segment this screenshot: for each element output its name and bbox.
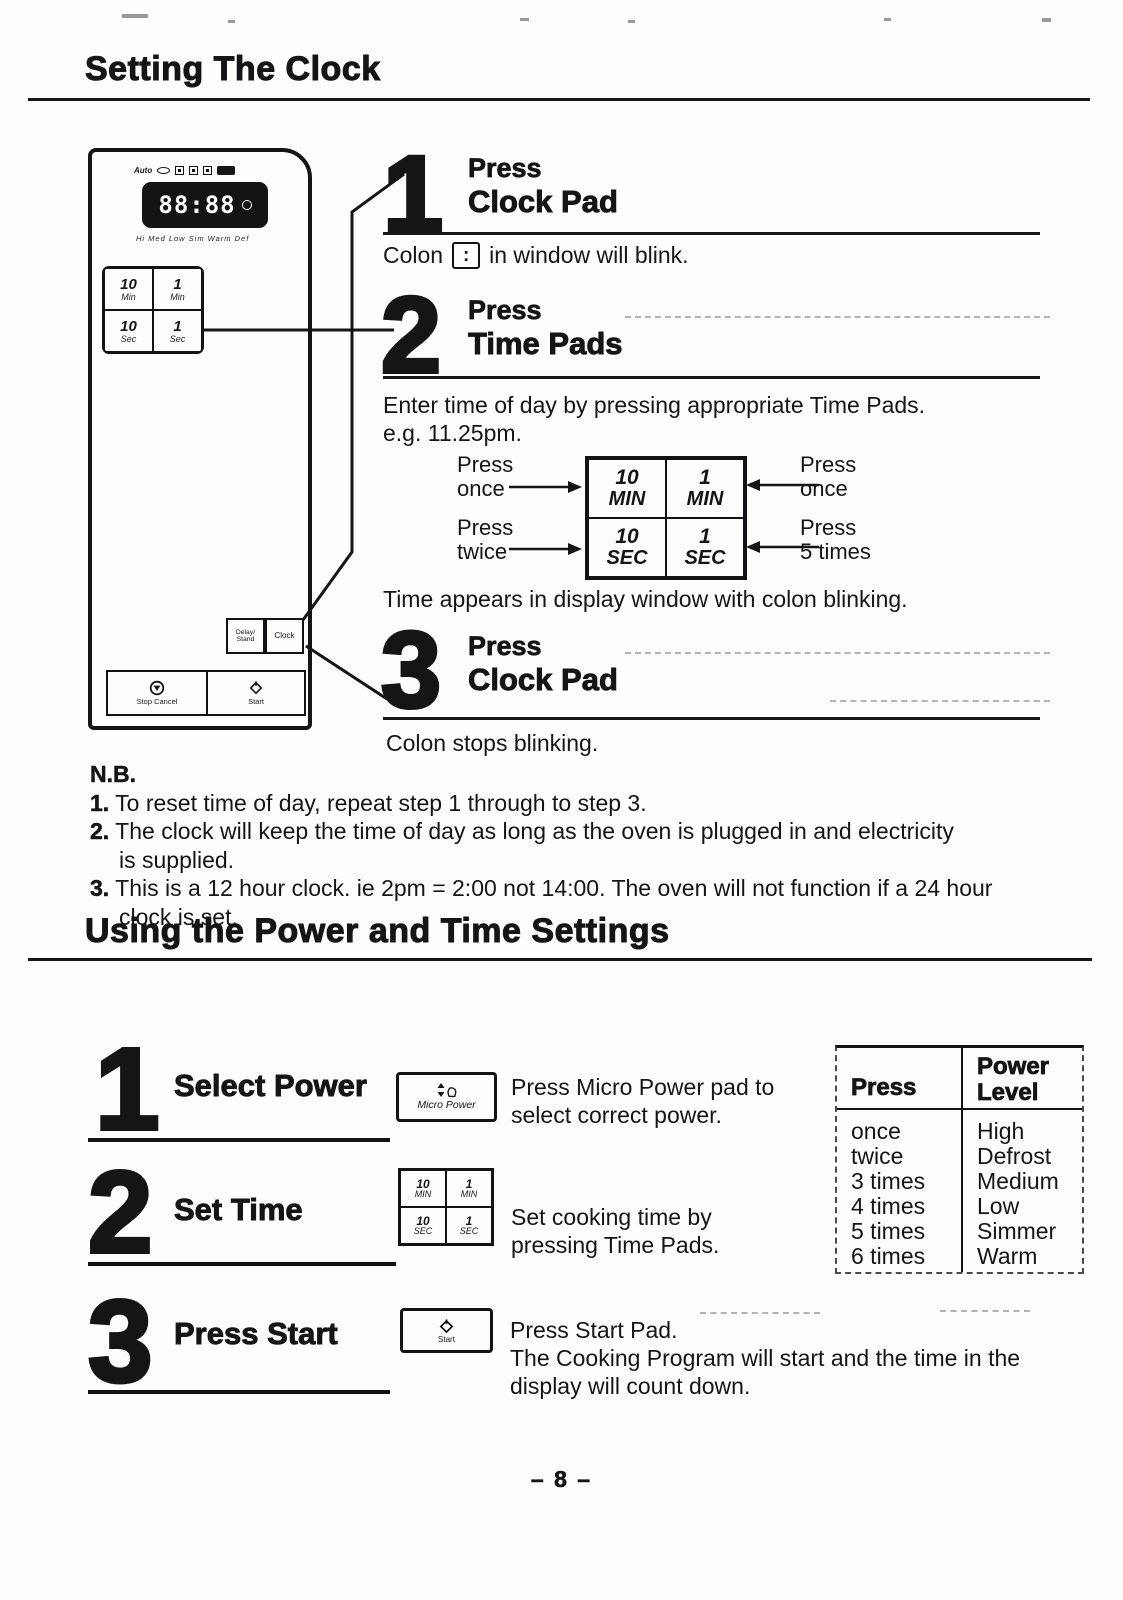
start-diamond-icon <box>248 680 264 696</box>
arrow-left-icon <box>745 478 819 492</box>
step-1-heading: Press Clock Pad <box>468 152 618 220</box>
start-diamond-icon <box>438 1318 455 1335</box>
colon-stops-note: Colon stops blinking. <box>386 729 598 757</box>
power-step-2-number: 2 <box>88 1163 153 1261</box>
step-2-heading: Press Time Pads <box>468 294 623 362</box>
seven-segment-digits: 88:88 <box>158 191 235 219</box>
step-3-rule <box>383 717 1040 720</box>
time-appears-note: Time appears in display window with colo… <box>383 585 908 613</box>
mini-time-pads: 10 MIN 1 MIN 10 SEC 1 SEC <box>398 1168 494 1246</box>
page-title: Setting The Clock <box>85 50 381 89</box>
clock-pad: Clock <box>265 618 304 654</box>
scan-artifact <box>628 20 635 23</box>
diagram-ten-min-pad: 10 MIN <box>588 459 666 518</box>
press-hand-icon <box>437 1083 457 1097</box>
power-step-1-underline <box>88 1138 390 1142</box>
select-power-desc: Press Micro Power pad to select correct … <box>511 1073 774 1129</box>
scan-artifact <box>520 18 529 21</box>
lock-indicator-icon <box>217 166 235 175</box>
micro-power-pad: Micro Power <box>396 1072 497 1122</box>
one-min-pad: 1 Min <box>153 268 202 310</box>
arrow-right-icon <box>509 542 583 556</box>
mini-one-sec-pad: 1 SEC <box>446 1207 492 1244</box>
table-row: twice Defrost <box>837 1143 1082 1168</box>
press-start-desc: Press Start Pad. The Cooking Program wil… <box>510 1316 1020 1400</box>
colon-box-icon: : <box>452 242 480 269</box>
weight-icon <box>203 166 212 175</box>
nb-item-1: 1. To reset time of day, repeat step 1 t… <box>90 789 1080 818</box>
nb-item-2: 2. The clock will keep the time of day a… <box>90 817 1080 846</box>
nb-item-3: 3. This is a 12 hour clock. ie 2pm = 2:0… <box>90 874 1080 903</box>
arrow-left-icon <box>745 540 819 554</box>
nb-notes: N.B. 1. To reset time of day, repeat ste… <box>90 760 1080 931</box>
delay-stand-pad: Delay/ Stand <box>226 618 265 654</box>
diagram-one-sec-pad: 1 SEC <box>666 518 744 577</box>
clock-display-window: 88:88 <box>142 182 268 228</box>
control-panel-figure: Auto 88:88 Hi Med Low Sim Warm Def 10 Mi… <box>88 148 312 730</box>
step-3-heading: Press Clock Pad <box>468 630 618 698</box>
table-row: 3 times Medium <box>837 1168 1082 1193</box>
step-1-number: 1 <box>383 148 443 240</box>
power-level-header: Power Level <box>977 1054 1049 1106</box>
time-pads-figure: 10 Min 1 Min 10 Sec 1 Sec <box>102 266 204 354</box>
scan-artifact <box>1042 18 1051 22</box>
step-3-number: 3 <box>381 624 441 716</box>
one-sec-pad: 1 Sec <box>153 310 202 352</box>
nb-title: N.B. <box>90 760 1080 789</box>
title-rule <box>28 958 1092 961</box>
press-start-label: Press Start <box>174 1316 338 1352</box>
mini-one-min-pad: 1 MIN <box>446 1170 492 1207</box>
step-2-rule <box>383 376 1040 379</box>
table-row: 5 times Simmer <box>837 1218 1082 1243</box>
scan-artifact <box>830 700 1050 702</box>
ten-min-pad: 10 Min <box>104 268 153 310</box>
scan-artifact <box>940 1310 1030 1312</box>
enter-time-paragraph: Enter time of day by pressing appropriat… <box>383 391 925 447</box>
dish-icon <box>157 167 170 174</box>
title-rule <box>28 98 1090 101</box>
scan-artifact <box>625 652 1050 654</box>
stop-cancel-pad: Stop Cancel <box>108 672 206 714</box>
diagram-ten-sec-pad: 10 SEC <box>588 518 666 577</box>
scan-artifact <box>884 18 891 21</box>
step-2-number: 2 <box>381 289 441 381</box>
diagram-one-min-pad: 1 MIN <box>666 459 744 518</box>
section-title-power: Using the Power and Time Settings <box>85 912 670 951</box>
set-time-desc: Set cooking time by pressing Time Pads. <box>511 1203 719 1259</box>
start-pad-figure: Start <box>400 1308 493 1353</box>
ten-sec-pad: 10 Sec <box>104 310 153 352</box>
scan-artifact <box>228 20 235 23</box>
display-indicator-icons: Auto <box>134 163 284 178</box>
colon-blink-note: Colon : in window will blink. <box>383 242 689 269</box>
arrow-right-icon <box>509 480 583 494</box>
press-twice-label: Press twice <box>457 516 513 564</box>
diagram-pad-grid: 10 MIN 1 MIN 10 SEC 1 SEC <box>585 456 747 580</box>
delay-clock-row: Delay/ Stand Clock <box>226 618 304 654</box>
power-level-indicator-labels: Hi Med Low Sim Warm Def <box>136 234 286 243</box>
start-pad: Start <box>206 672 304 714</box>
cook-icon <box>189 166 198 175</box>
table-row: once High <box>837 1118 1082 1143</box>
page-number: – 8 – <box>531 1466 592 1493</box>
table-header: Press Power Level <box>837 1048 1082 1110</box>
press-once-right-label: Press once <box>800 453 856 501</box>
step-1-rule <box>383 232 1040 235</box>
power-step-3-number: 3 <box>88 1292 153 1390</box>
power-step-3-underline <box>88 1390 390 1394</box>
manual-page: Setting The Clock Auto 88:88 Hi Med Low … <box>0 0 1123 1600</box>
power-level-table: Press Power Level once High twice Defros… <box>835 1045 1084 1274</box>
table-row: 6 times Warm <box>837 1243 1082 1268</box>
scan-artifact <box>700 1312 820 1314</box>
scan-artifact <box>625 316 1050 318</box>
time-pad-press-diagram: 10 MIN 1 MIN 10 SEC 1 SEC Press once Pre… <box>383 450 1040 580</box>
set-time-label: Set Time <box>174 1192 303 1228</box>
mini-ten-sec-pad: 10 SEC <box>400 1207 446 1244</box>
mini-ten-min-pad: 10 MIN <box>400 1170 446 1207</box>
table-row: 4 times Low <box>837 1193 1082 1218</box>
power-step-2-underline <box>88 1262 396 1266</box>
stop-icon <box>149 680 165 696</box>
defrost-icon <box>175 166 184 175</box>
scan-artifact <box>122 14 148 18</box>
press-once-left-label: Press once <box>457 453 513 501</box>
power-step-1-number: 1 <box>95 1040 160 1138</box>
auto-indicator-label: Auto <box>134 166 152 175</box>
stop-start-row: Stop Cancel Start <box>106 670 306 716</box>
timer-icon <box>242 200 252 210</box>
select-power-label: Select Power <box>174 1068 367 1104</box>
